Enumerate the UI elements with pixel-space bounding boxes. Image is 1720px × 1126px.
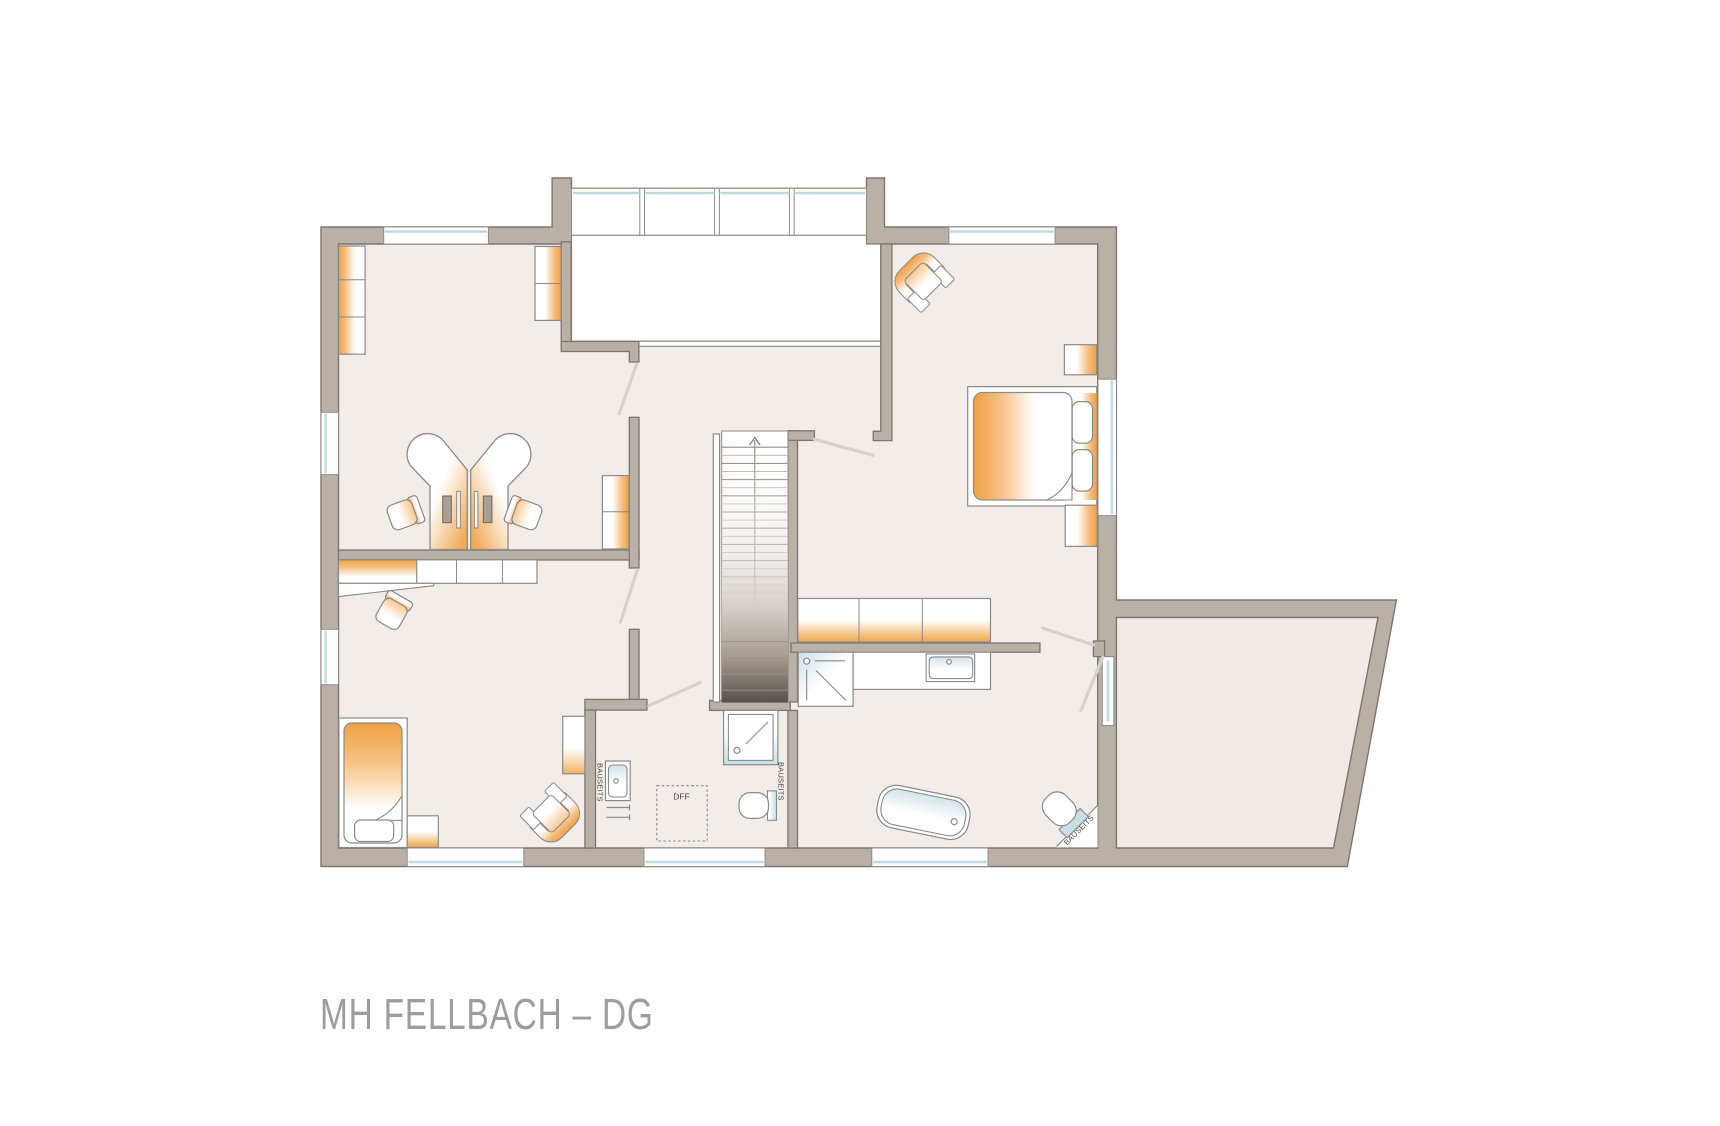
svg-text:DFF: DFF	[673, 792, 690, 802]
svg-text:BAUSEITS: BAUSEITS	[596, 763, 605, 802]
svg-text:BAUSEITS: BAUSEITS	[777, 762, 786, 801]
